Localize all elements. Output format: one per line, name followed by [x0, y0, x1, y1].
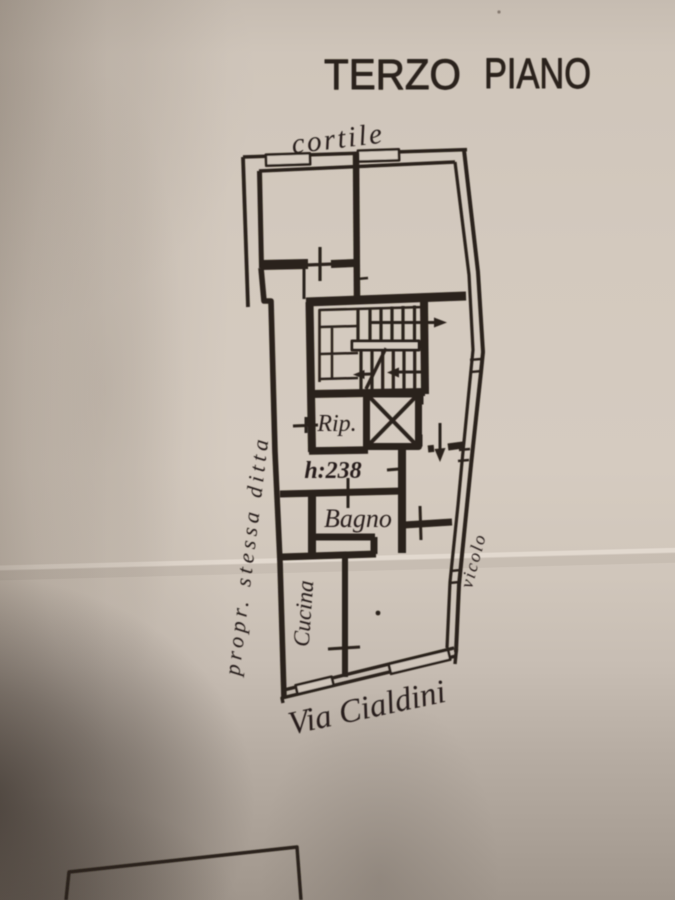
svg-text:h:238: h:238 — [304, 458, 361, 484]
svg-text:Rip.: Rip. — [316, 411, 356, 437]
svg-text:TERZO: TERZO — [324, 51, 461, 99]
svg-text:Bagno: Bagno — [324, 504, 392, 533]
svg-text:Cucina: Cucina — [289, 579, 319, 647]
svg-text:propr. stessa ditta: propr. stessa ditta — [219, 434, 274, 679]
svg-text:PIANO: PIANO — [484, 50, 591, 98]
